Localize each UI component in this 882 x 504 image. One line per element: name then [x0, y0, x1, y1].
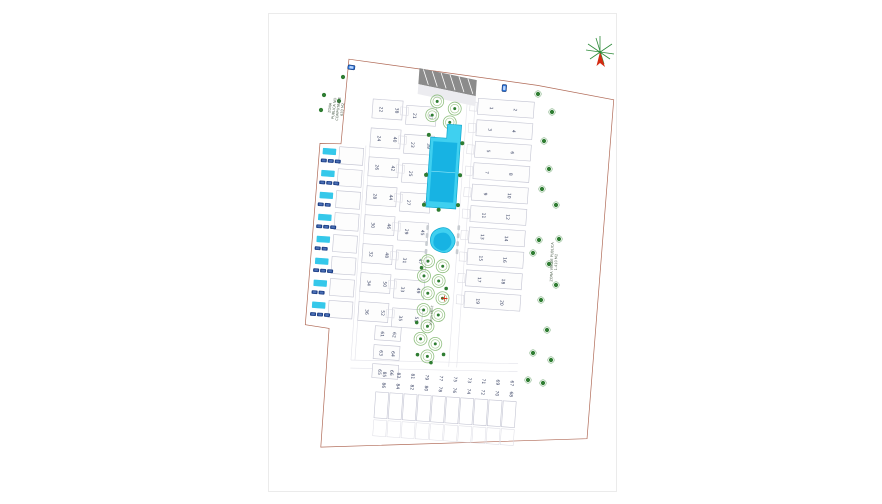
zone-right-label-line: 1.410 M2 [554, 254, 559, 271]
plot-number: 3 [486, 128, 492, 131]
plot-number: 30 [369, 222, 375, 228]
car-windshield [320, 292, 324, 294]
plot-number: 64 [389, 351, 395, 357]
car-windshield [313, 291, 317, 293]
plot-number: 21 [411, 113, 417, 119]
villa-footprint [329, 278, 354, 297]
tree-icon [531, 251, 535, 255]
plot-number: 16 [501, 257, 507, 263]
plot-number: 52 [379, 310, 385, 316]
plot-number: 83 [395, 372, 401, 378]
plot-number: 6 [509, 151, 515, 154]
plot-number: 22 [377, 106, 383, 112]
plot-number: 31 [401, 257, 407, 263]
plot-number: 15 [477, 255, 483, 261]
plot-number: 82 [408, 384, 414, 390]
villa-footprint [331, 256, 356, 275]
tree-icon [531, 351, 535, 355]
plot-number: 27 [405, 200, 411, 206]
duplex-footprint [373, 345, 400, 361]
plot-number: 85 [381, 371, 387, 377]
plot-number: 50 [381, 281, 387, 287]
car-windshield [318, 313, 322, 315]
villa-pool [318, 213, 332, 221]
villa-footprint [336, 191, 361, 210]
car-windshield [319, 203, 323, 205]
car-windshield [329, 160, 333, 162]
tree-icon [536, 92, 540, 96]
car-windshield [324, 226, 328, 228]
lounger-icon [425, 249, 428, 254]
tree-icon [341, 75, 345, 79]
villa-pool [315, 257, 329, 265]
villa-footprint [337, 169, 362, 188]
car-windshield [320, 181, 324, 183]
lounger-icon [456, 249, 459, 254]
car-windshield [334, 182, 338, 184]
tree-icon [539, 298, 543, 302]
lounger-icon [457, 225, 460, 230]
plot-number: 26 [373, 164, 379, 170]
lounger-icon [426, 233, 429, 238]
plot-number: 34 [365, 280, 371, 286]
tree-icon [319, 108, 323, 112]
plot-number: 67 [508, 380, 514, 386]
car-windshield [326, 204, 330, 206]
lounger-icon [426, 225, 429, 230]
plot-number: 13 [479, 234, 485, 240]
plot-number: 45 [419, 230, 425, 236]
plot-number: 40 [391, 136, 397, 142]
plot-number: 35 [397, 315, 403, 321]
plot-number: 23 [409, 142, 415, 148]
lounger-icon [456, 241, 459, 246]
plot-number: 14 [503, 235, 509, 241]
plot-number: 24 [375, 135, 381, 141]
plot-number: 77 [437, 375, 443, 381]
tree-icon [557, 237, 561, 241]
plot-number: 11 [480, 212, 486, 218]
plot-number: 4 [510, 130, 516, 133]
villa-footprint [334, 213, 359, 232]
plot-number: 19 [474, 298, 480, 304]
car-windshield [336, 160, 340, 162]
plot-number: 25 [407, 171, 413, 177]
car-windshield [328, 270, 332, 272]
plot-number: 86 [380, 382, 386, 388]
car-windshield [316, 247, 320, 249]
tree-icon [526, 378, 530, 382]
plot-number: 68 [508, 391, 514, 397]
car-glass [503, 86, 506, 90]
tree-icon [541, 381, 545, 385]
plot-number: 79 [423, 374, 429, 380]
villa-pool [311, 301, 325, 309]
site-plan-drawing: 1234567891011121314151617181920223821372… [0, 0, 882, 504]
villa-pool [313, 279, 327, 287]
plot-number: 8 [507, 173, 513, 176]
car-windshield [314, 269, 318, 271]
lounger-icon [425, 241, 428, 246]
plot-number: 73 [466, 377, 472, 383]
lounger-icon [457, 233, 460, 238]
plot-number: 70 [493, 390, 499, 396]
car-windshield [317, 225, 321, 227]
car-windshield [311, 313, 315, 315]
plot-number: 1 [488, 107, 494, 110]
car-windshield [322, 159, 326, 161]
plot-number: 74 [465, 388, 471, 394]
plot-number: 7 [483, 171, 489, 174]
plot-number: 48 [383, 252, 389, 258]
plot-number: 78 [437, 386, 443, 392]
plot-number: 28 [371, 193, 377, 199]
car-windshield [323, 248, 327, 250]
tree-icon [547, 167, 551, 171]
car-windshield [325, 314, 329, 316]
site-plan-page: 1234567891011121314151617181920223821372… [0, 0, 882, 504]
car-windshield [327, 182, 331, 184]
car-label-icon [348, 65, 356, 70]
villa-footprint [339, 147, 364, 166]
villa-pool [322, 148, 336, 156]
plot-number: 38 [393, 108, 399, 114]
plot-number: 61 [379, 331, 385, 337]
plot-number: 10 [506, 193, 512, 199]
plot-number: 76 [451, 387, 457, 393]
tree-icon [537, 238, 541, 242]
plot-number: 81 [409, 373, 415, 379]
car-windshield [321, 270, 325, 272]
car-label-icon [502, 84, 507, 91]
plot-number: 75 [452, 376, 458, 382]
plot-number: 18 [500, 278, 506, 284]
plot-number: 9 [482, 192, 488, 195]
car-windshield [331, 226, 335, 228]
plot-number: 84 [394, 383, 400, 389]
tree-icon [549, 358, 553, 362]
duplex-footprint [374, 326, 401, 342]
plot-number: 49 [415, 287, 421, 293]
plot-number: 44 [387, 194, 393, 200]
plot-number: 71 [480, 378, 486, 384]
plot-number: 42 [389, 165, 395, 171]
plot-number: 5 [485, 149, 491, 152]
tree-icon [554, 203, 558, 207]
villa-pool [316, 235, 330, 243]
plot-number: 36 [363, 309, 369, 315]
plot-number: 80 [423, 385, 429, 391]
tree-icon [542, 139, 546, 143]
tree-icon [540, 187, 544, 191]
plot-number: 2 [512, 108, 518, 111]
tree-icon [550, 110, 554, 114]
plot-number: 29 [403, 228, 409, 234]
plot-number: 72 [479, 389, 485, 395]
villa-footprint [328, 300, 353, 319]
plot-number: 20 [498, 300, 504, 306]
plot-number: 63 [377, 350, 383, 356]
tree-icon [322, 93, 326, 97]
plot-number: 33 [399, 286, 405, 292]
villa-pool [319, 191, 333, 199]
plot-number: 17 [476, 277, 482, 283]
tree-icon [554, 283, 558, 287]
tree-icon [545, 328, 549, 332]
villa-footprint [332, 235, 357, 254]
plot-number: 62 [391, 332, 397, 338]
plot-number: 66 [388, 370, 394, 376]
plot-number: 46 [385, 223, 391, 229]
plot-number: 69 [494, 379, 500, 385]
plot-number: 12 [504, 214, 510, 220]
villa-pool [321, 169, 335, 177]
plot-number: 32 [367, 251, 373, 257]
compass-center [599, 51, 601, 53]
